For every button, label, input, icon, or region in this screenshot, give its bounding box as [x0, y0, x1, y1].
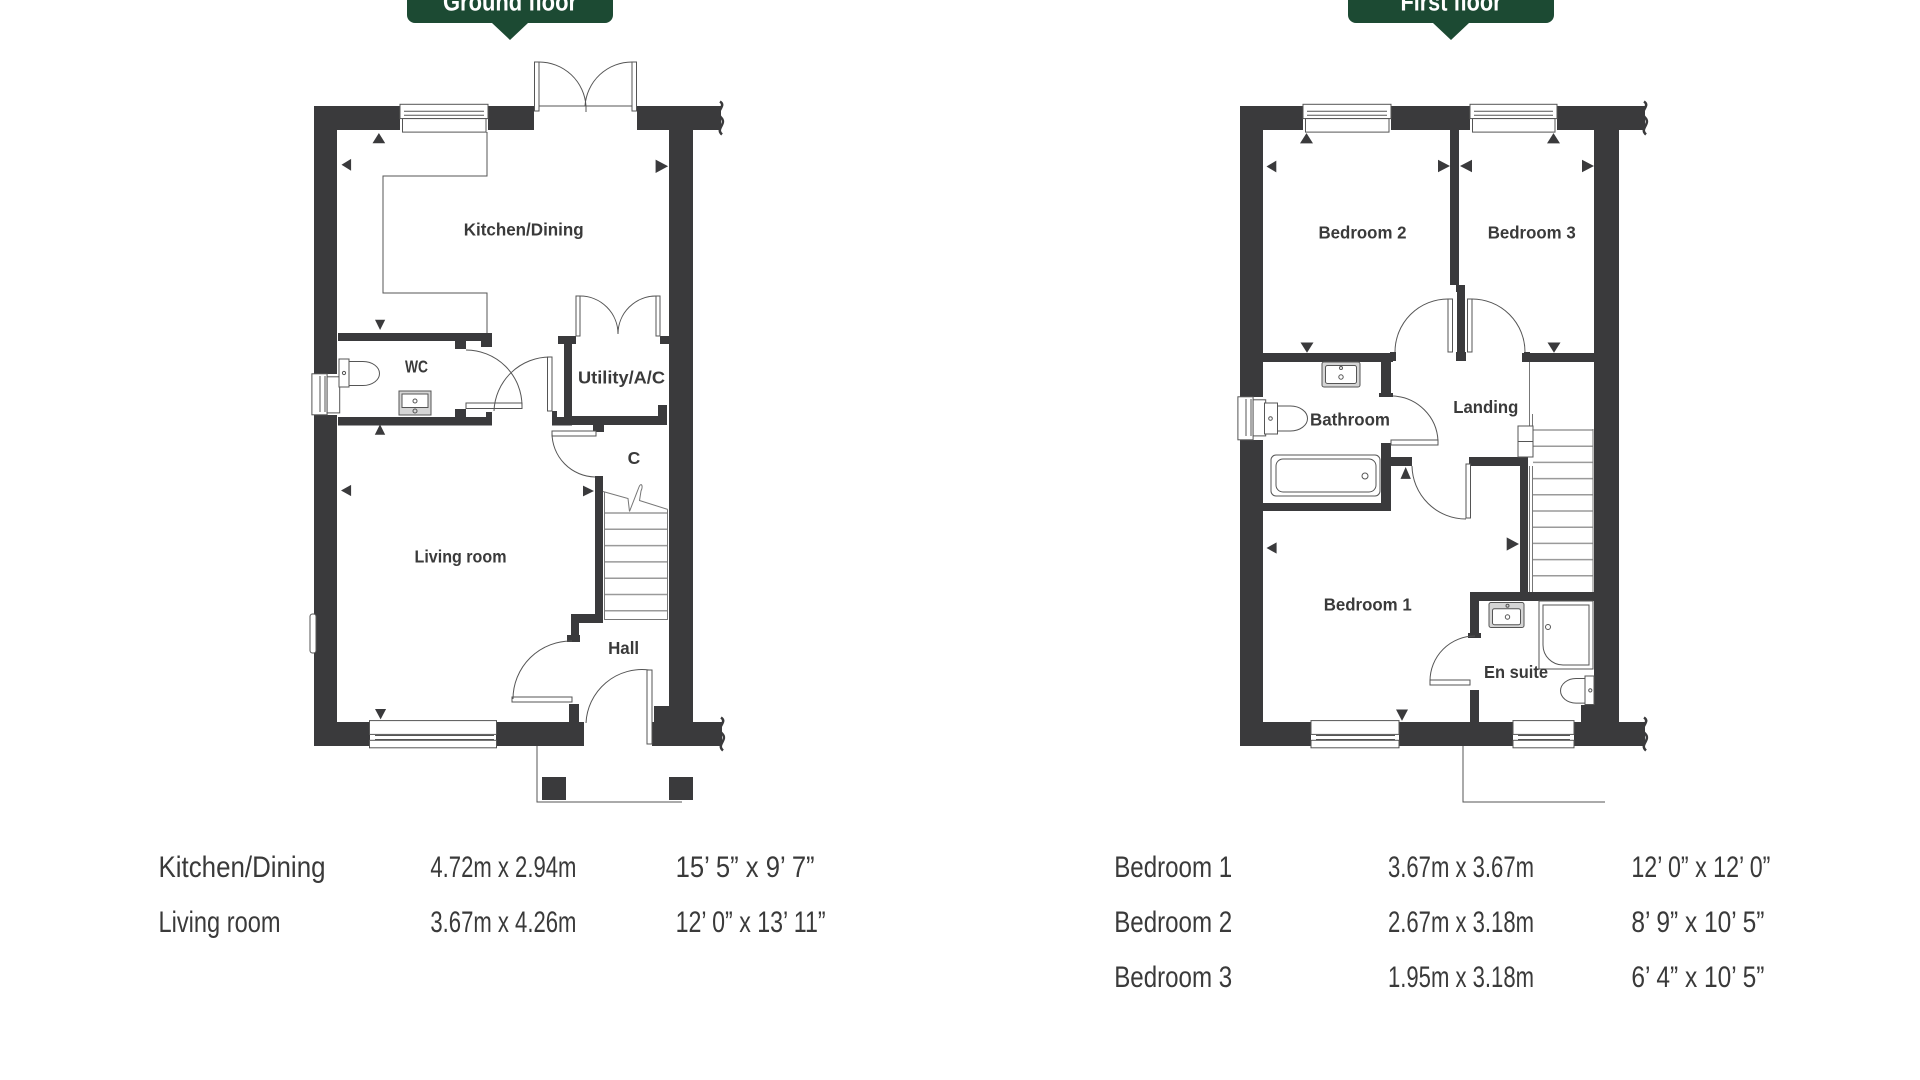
svg-text:12’ 0” x 12’ 0”: 12’ 0” x 12’ 0” — [1631, 851, 1770, 884]
svg-text:Utility/A/C: Utility/A/C — [578, 368, 665, 388]
svg-text:Landing: Landing — [1453, 397, 1518, 417]
svg-text:Bedroom 3: Bedroom 3 — [1488, 223, 1576, 243]
svg-text:15’ 5” x 9’ 7”: 15’ 5” x 9’ 7” — [676, 851, 815, 884]
svg-text:C: C — [628, 448, 641, 468]
svg-text:4.72m x 2.94m: 4.72m x 2.94m — [430, 851, 576, 884]
svg-text:Bedroom 2: Bedroom 2 — [1114, 906, 1232, 939]
svg-text:Bedroom 1: Bedroom 1 — [1324, 594, 1412, 614]
svg-text:Living room: Living room — [415, 547, 507, 567]
svg-text:8’ 9” x 10’ 5”: 8’ 9” x 10’ 5” — [1631, 906, 1764, 939]
svg-text:En suite: En suite — [1484, 662, 1548, 682]
svg-text:12’ 0” x 13’ 11”: 12’ 0” x 13’ 11” — [676, 906, 826, 939]
svg-text:Bedroom 1: Bedroom 1 — [1114, 851, 1232, 884]
svg-text:Bedroom 3: Bedroom 3 — [1114, 961, 1232, 994]
svg-text:First floor: First floor — [1401, 0, 1502, 17]
svg-text:Bathroom: Bathroom — [1310, 409, 1390, 429]
svg-text:3.67m x 4.26m: 3.67m x 4.26m — [430, 906, 576, 939]
svg-text:6’ 4” x 10’ 5”: 6’ 4” x 10’ 5” — [1631, 961, 1764, 994]
svg-text:Kitchen/Dining: Kitchen/Dining — [159, 851, 326, 884]
svg-text:Hall: Hall — [608, 638, 639, 658]
svg-text:WC: WC — [405, 356, 428, 376]
svg-text:Ground floor: Ground floor — [443, 0, 577, 17]
svg-text:2.67m x 3.18m: 2.67m x 3.18m — [1388, 906, 1534, 939]
svg-text:1.95m x 3.18m: 1.95m x 3.18m — [1388, 961, 1534, 994]
svg-text:Living room: Living room — [159, 906, 281, 939]
svg-text:Kitchen/Dining: Kitchen/Dining — [464, 220, 584, 240]
svg-text:3.67m x 3.67m: 3.67m x 3.67m — [1388, 851, 1534, 884]
svg-text:Bedroom 2: Bedroom 2 — [1319, 223, 1407, 243]
